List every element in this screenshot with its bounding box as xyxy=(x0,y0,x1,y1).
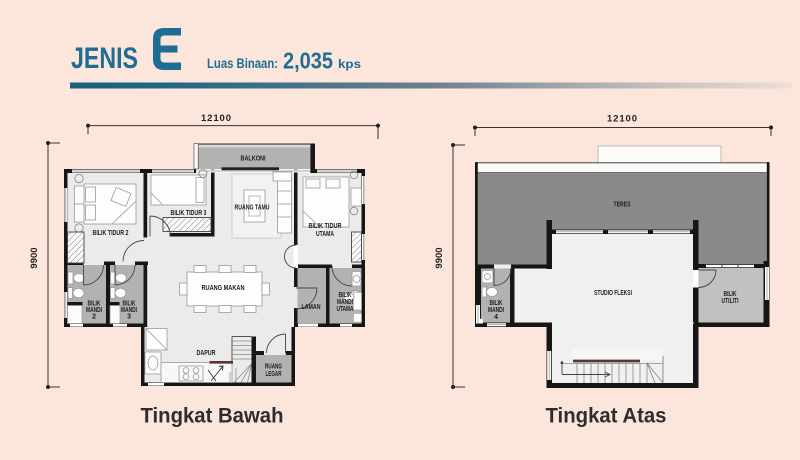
svg-text:2: 2 xyxy=(92,314,96,321)
svg-text:12100: 12100 xyxy=(607,114,637,125)
svg-text:9900: 9900 xyxy=(434,247,445,268)
svg-text:2,035: 2,035 xyxy=(283,48,333,74)
svg-text:STUDIO FLEKSI: STUDIO FLEKSI xyxy=(594,290,632,297)
svg-text:MANDI: MANDI xyxy=(337,299,353,306)
svg-text:3: 3 xyxy=(127,314,131,321)
svg-text:9900: 9900 xyxy=(29,247,40,268)
svg-text:BILIK: BILIK xyxy=(724,291,737,298)
svg-text:UTAMA: UTAMA xyxy=(316,231,334,238)
svg-text:RUANG: RUANG xyxy=(265,364,282,371)
svg-text:BILIK: BILIK xyxy=(490,300,503,307)
svg-text:BILIK: BILIK xyxy=(339,292,352,299)
svg-text:UTILITI: UTILITI xyxy=(722,298,739,305)
svg-text:BILIK TIDUR: BILIK TIDUR xyxy=(309,223,342,230)
svg-text:kps: kps xyxy=(338,57,361,71)
svg-text:RUANG TAMU: RUANG TAMU xyxy=(235,205,270,212)
svg-text:LAMAN: LAMAN xyxy=(302,304,321,311)
svg-text:Luas Binaan:: Luas Binaan: xyxy=(207,56,278,71)
svg-text:BILIK TIDUR 2: BILIK TIDUR 2 xyxy=(93,230,129,237)
svg-text:DAPUR: DAPUR xyxy=(197,350,216,357)
svg-text:4: 4 xyxy=(494,314,498,321)
svg-text:UTAMA: UTAMA xyxy=(337,306,354,313)
svg-text:BILIK TIDUR 3: BILIK TIDUR 3 xyxy=(171,210,207,217)
svg-text:Tingkat Bawah: Tingkat Bawah xyxy=(141,404,284,428)
svg-text:12100: 12100 xyxy=(201,113,231,124)
svg-text:MANDI: MANDI xyxy=(488,307,504,314)
svg-text:JENIS: JENIS xyxy=(71,42,138,75)
svg-text:RUANG MAKAN: RUANG MAKAN xyxy=(202,285,245,292)
svg-text:TERES: TERES xyxy=(614,202,631,209)
svg-text:LEGAR: LEGAR xyxy=(266,371,282,378)
svg-text:Tingkat Atas: Tingkat Atas xyxy=(546,404,667,428)
svg-text:BALKONI: BALKONI xyxy=(241,156,266,163)
